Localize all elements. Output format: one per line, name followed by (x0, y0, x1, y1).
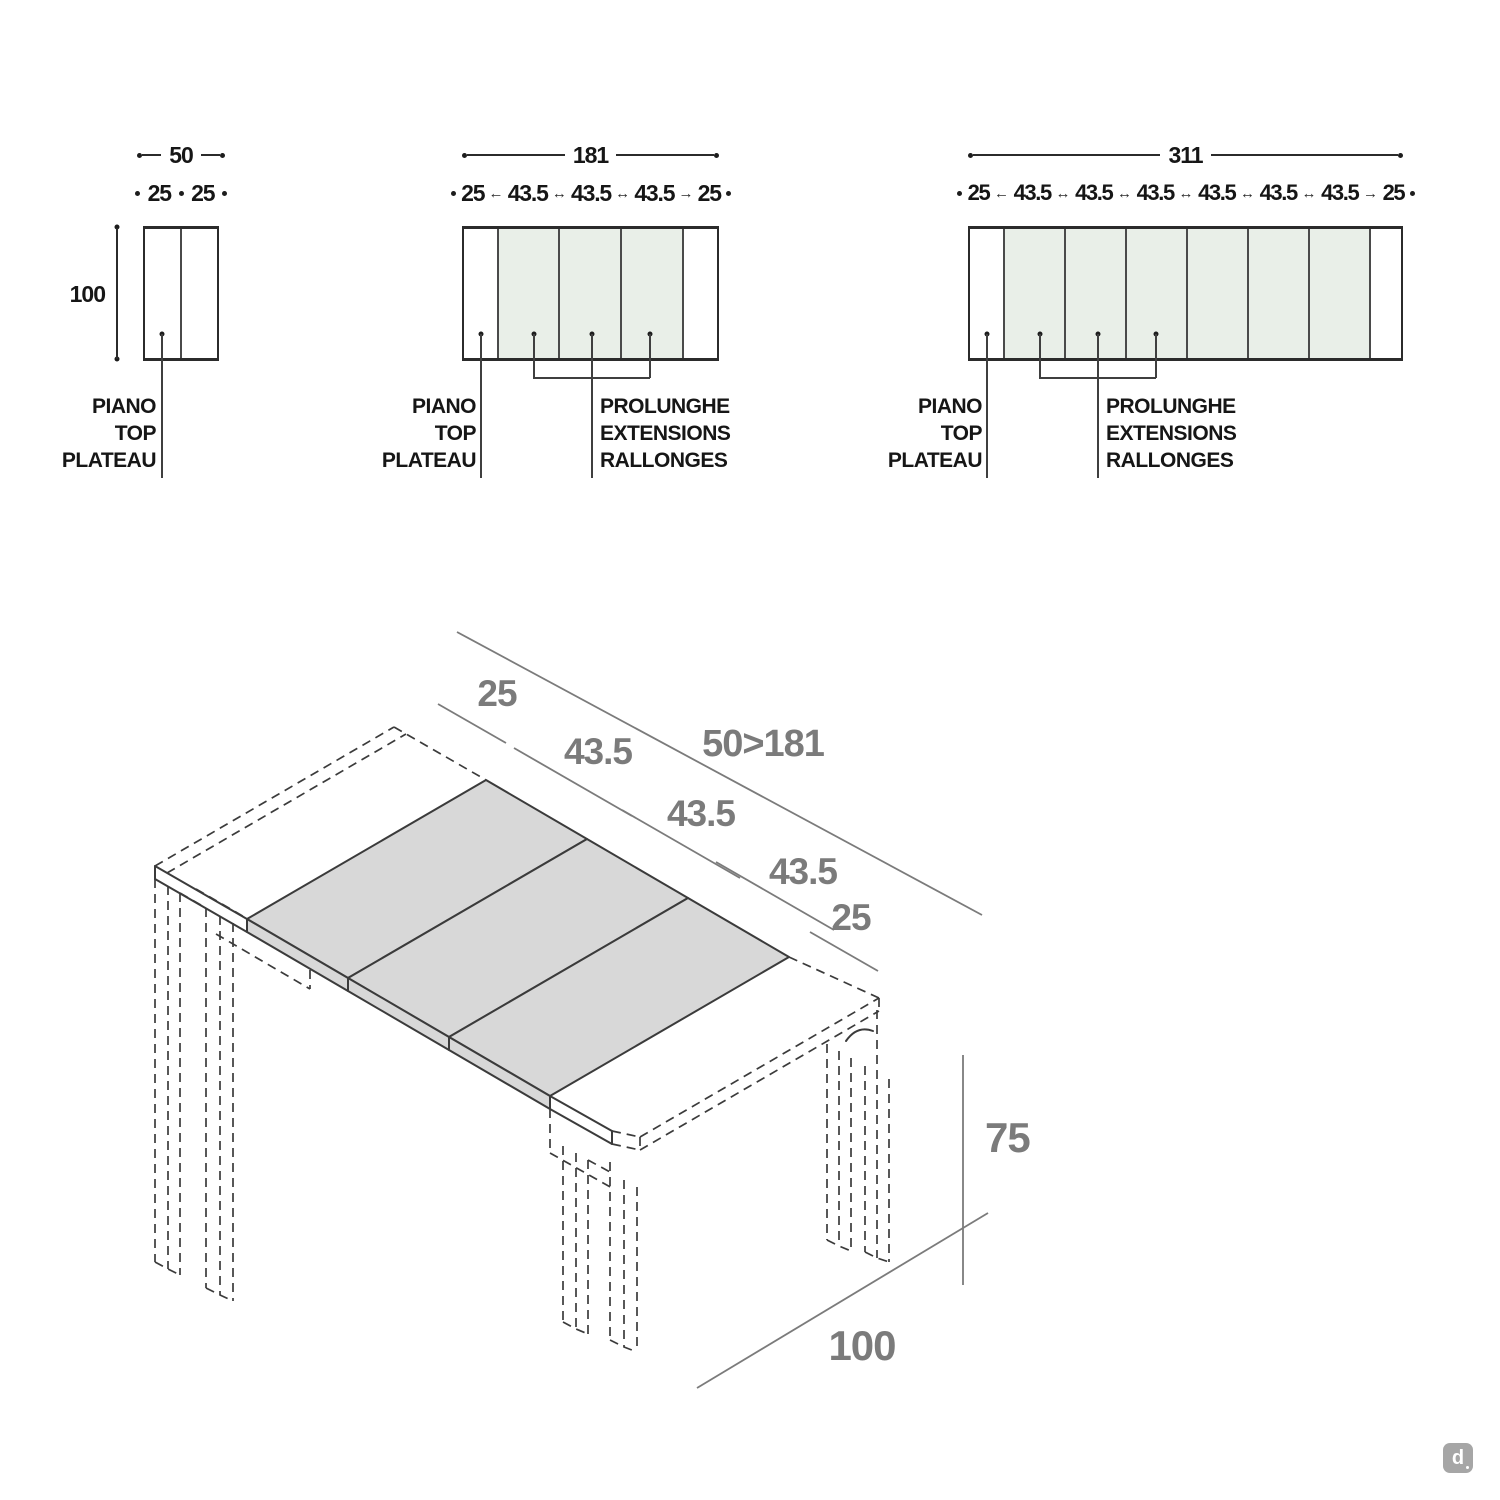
extensions-label-line: EXTENSIONS (600, 420, 730, 447)
table-leg-foot (827, 1240, 851, 1251)
dimension-label-depth: 100 (828, 1322, 895, 1369)
apron-edge (550, 1153, 612, 1188)
dimension-label: 25 (461, 182, 484, 205)
dimension-label: 43.5 (1198, 182, 1235, 204)
leader-line (480, 334, 482, 478)
dimension-label: 43.5 (1260, 182, 1297, 204)
watermark-badge: d (1443, 1443, 1473, 1473)
top-label-line: PIANO (26, 393, 156, 420)
dimension-dot (957, 191, 962, 196)
panel-divider (180, 229, 182, 358)
dimension-arrow-icon: → (678, 186, 693, 201)
dimension-label-height: 75 (985, 1114, 1030, 1161)
extensions-label: PROLUNGHE EXTENSIONS RALLONGES (600, 393, 730, 474)
table-front-edge (612, 1131, 640, 1137)
table-right-thickness-edge (640, 1011, 879, 1150)
leader-line (649, 334, 651, 378)
dimension-label-range: 50>181 (702, 723, 825, 765)
watermark-letter: d (1452, 1447, 1464, 1470)
dimension-dot (726, 191, 731, 196)
leader-line (1039, 334, 1041, 378)
panel-divider (1247, 229, 1249, 358)
table-back-edge (394, 727, 486, 780)
panel-divider (1064, 229, 1066, 358)
extensions-label-line: EXTENSIONS (1106, 420, 1236, 447)
total-dimension-311: 311 (968, 143, 1403, 167)
chain-dimension-row: 25 ← 43.5 ↔ 43.5 ↔ 43.5 ↔ 43.5 ↔ 43.5 ↔ … (957, 181, 1415, 205)
dimension-diagram: 50 25 25 100 PIANO TOP PLATEAU 181 25 ← … (0, 0, 1500, 1500)
dimension-arrow-icon: → (1363, 186, 1378, 201)
isometric-table-drawing: 25 43.5 43.5 43.5 25 50>181 75 100 (0, 600, 1500, 1500)
panel-divider (682, 229, 684, 358)
dimension-dot (1410, 191, 1415, 196)
dimension-label: 43.5 (634, 182, 674, 205)
table-plan-extended-311 (968, 226, 1403, 361)
table-thickness-edge (612, 1144, 640, 1150)
dimension-arrow-icon: ↔ (1055, 186, 1070, 201)
dimension-label: 43.5 (667, 793, 735, 834)
chain-dimension-row: 25 25 (135, 181, 227, 205)
dimension-line (616, 154, 714, 156)
dimension-line (973, 154, 1160, 156)
dimension-label: 25 (831, 897, 871, 938)
dimension-label: 25 (477, 673, 517, 714)
dimension-arrow-icon: ↔ (615, 186, 630, 201)
dimension-line (116, 228, 118, 359)
dimension-label: 43.5 (769, 851, 837, 892)
dimension-label: 25 (698, 182, 721, 205)
top-label-line: PLATEAU (346, 447, 476, 474)
leader-line (161, 334, 163, 478)
table-leg-top (588, 1160, 610, 1172)
dimension-dot (135, 191, 140, 196)
top-label: PIANO TOP PLATEAU (852, 393, 982, 474)
dimension-dot (451, 191, 456, 196)
dimension-line (467, 154, 565, 156)
panel-divider (1125, 229, 1127, 358)
top-label-line: PLATEAU (852, 447, 982, 474)
extensions-label-line: PROLUNGHE (1106, 393, 1236, 420)
dimension-label: 25 (191, 182, 214, 205)
dimension-arrow-icon: ← (489, 186, 504, 201)
dimension-arrow-icon: ↔ (552, 186, 567, 201)
leader-line (533, 334, 535, 378)
panel-divider (620, 229, 622, 358)
total-dimension-181: 181 (462, 143, 719, 167)
chain-dimension-row: 25 ← 43.5 ↔ 43.5 ↔ 43.5 → 25 (451, 181, 731, 205)
dimension-dot (714, 153, 719, 158)
dimension-label: 100 (55, 281, 105, 308)
extensions-label-line: RALLONGES (1106, 447, 1236, 474)
extensions-label-line: RALLONGES (600, 447, 730, 474)
dimension-dot (222, 191, 227, 196)
table-plan-closed (143, 226, 219, 361)
panel-divider (1308, 229, 1310, 358)
top-label-line: PIANO (852, 393, 982, 420)
dimension-arrow-icon: ↔ (1240, 186, 1255, 201)
panel-divider (1003, 229, 1005, 358)
table-top-left-edge (155, 727, 394, 866)
dimension-label: 311 (1160, 144, 1210, 167)
dimension-line (1211, 154, 1398, 156)
total-dimension-50: 50 (137, 143, 225, 167)
dimension-line (201, 154, 220, 156)
dimension-label: 50 (161, 144, 201, 167)
dimension-arrow-icon: ↔ (1117, 186, 1132, 201)
dimension-label: 25 (148, 182, 171, 205)
dimension-arrow-icon: ← (994, 186, 1009, 201)
dimension-arrow-icon: ↔ (1178, 186, 1193, 201)
table-leg (563, 1146, 588, 1334)
dimension-label: 25 (1383, 182, 1405, 204)
dimension-dot (1398, 153, 1403, 158)
dimension-label: 43.5 (1075, 182, 1112, 204)
panel-divider (497, 229, 499, 358)
table-leg (155, 879, 180, 1275)
dimension-label: 43.5 (1014, 182, 1051, 204)
table-leg (865, 1010, 889, 1262)
table-leg (827, 1044, 851, 1251)
dimension-dot (220, 153, 225, 158)
dimension-label: 181 (565, 144, 616, 167)
dimension-label: 43.5 (508, 182, 548, 205)
dimension-label: 43.5 (1137, 182, 1174, 204)
dimension-dot (179, 191, 184, 196)
panel-divider (558, 229, 560, 358)
top-label: PIANO TOP PLATEAU (346, 393, 476, 474)
panel-divider (1369, 229, 1371, 358)
dimension-label: 43.5 (571, 182, 611, 205)
leader-line (1097, 334, 1099, 478)
extensions-label: PROLUNGHE EXTENSIONS RALLONGES (1106, 393, 1236, 474)
top-label-line: PIANO (346, 393, 476, 420)
dimension-arrow-icon: ↔ (1301, 186, 1316, 201)
panel-divider (1186, 229, 1188, 358)
leader-line (1155, 334, 1157, 378)
table-leg (206, 908, 233, 1301)
table-leg (610, 1162, 637, 1352)
top-label-line: PLATEAU (26, 447, 156, 474)
leg-corner-detail (846, 1029, 873, 1041)
dimension-label: 25 (968, 182, 990, 204)
top-label-line: TOP (346, 420, 476, 447)
top-label-line: TOP (26, 420, 156, 447)
top-label: PIANO TOP PLATEAU (26, 393, 156, 474)
extensions-label-line: PROLUNGHE (600, 393, 730, 420)
top-label-line: TOP (852, 420, 982, 447)
leader-line (591, 334, 593, 478)
dimension-line (142, 154, 161, 156)
dimension-label: 43.5 (1321, 182, 1358, 204)
leader-line (986, 334, 988, 478)
dimension-label: 43.5 (564, 731, 632, 772)
watermark-dot (1466, 1466, 1469, 1469)
